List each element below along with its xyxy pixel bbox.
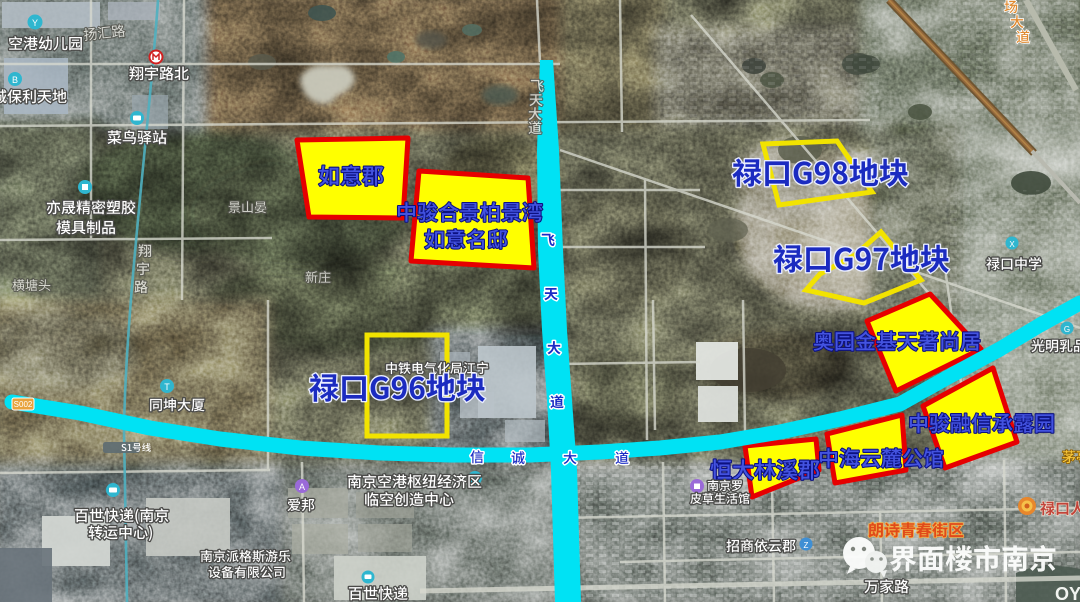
- svg-text:B: B: [12, 75, 18, 85]
- svg-text:A: A: [299, 482, 305, 492]
- svg-text:T: T: [164, 382, 170, 392]
- svg-text:S002: S002: [14, 400, 33, 409]
- svg-text:Y: Y: [32, 18, 38, 28]
- svg-text:OY: OY: [1055, 584, 1080, 602]
- svg-text:X: X: [1009, 240, 1015, 249]
- svg-text:Z: Z: [804, 541, 809, 550]
- svg-text:G: G: [1064, 325, 1070, 334]
